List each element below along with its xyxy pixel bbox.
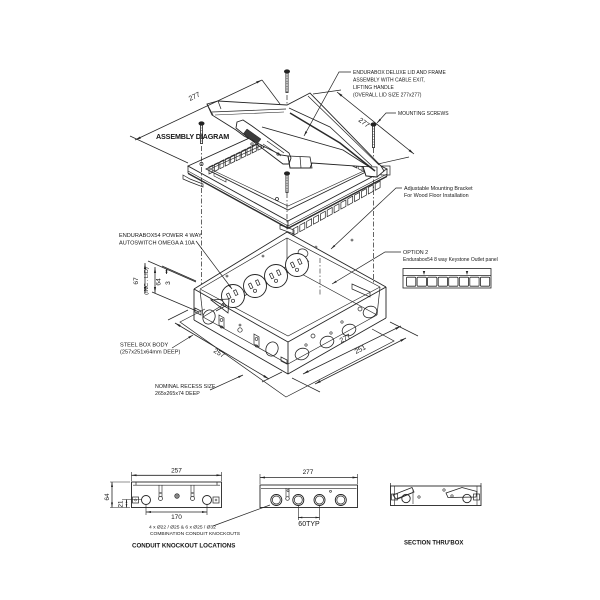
svg-text:277: 277 xyxy=(303,469,314,476)
svg-text:4 x Ø22 / Ø25 & 6 x Ø25 / Ø32: 4 x Ø22 / Ø25 & 6 x Ø25 / Ø32 xyxy=(149,525,216,531)
svg-text:For Wood Floor Installation: For Wood Floor Installation xyxy=(404,193,469,199)
svg-text:257: 257 xyxy=(171,468,182,475)
svg-text:NOMINAL RECESS SIZE: NOMINAL RECESS SIZE xyxy=(155,384,216,390)
svg-text:60TYP: 60TYP xyxy=(298,521,320,528)
svg-text:COMBINATION CONDUIT KNOCKOUTS: COMBINATION CONDUIT KNOCKOUTS xyxy=(150,531,241,537)
svg-text:(INC . LID): (INC . LID) xyxy=(144,267,150,295)
svg-text:(257x251x64mm DEEP): (257x251x64mm DEEP) xyxy=(120,350,180,356)
svg-text:21: 21 xyxy=(118,500,125,507)
svg-text:3: 3 xyxy=(165,281,172,285)
svg-text:OPTION 2: OPTION 2 xyxy=(403,250,428,256)
svg-text:MOUNTING SCREWS: MOUNTING SCREWS xyxy=(398,111,449,117)
svg-text:ASSEMBLY WITH CABLE EXIT,: ASSEMBLY WITH CABLE EXIT, xyxy=(353,78,425,84)
svg-text:ENDURABOX DELUXE LID AND FRAME: ENDURABOX DELUXE LID AND FRAME xyxy=(353,70,446,76)
svg-text:AUTOSWITCH OMEGA A 10A: AUTOSWITCH OMEGA A 10A xyxy=(119,241,195,247)
svg-text:Adjustable Mounting Bracket: Adjustable Mounting Bracket xyxy=(404,186,473,192)
svg-text:67: 67 xyxy=(133,277,140,285)
svg-text:ENDURABOX54 POWER 4 WAY: ENDURABOX54 POWER 4 WAY xyxy=(119,233,202,239)
svg-text:Endurabox54 8 way Keystone Out: Endurabox54 8 way Keystone Outlet panel xyxy=(403,257,498,263)
svg-text:LIFTING HANDLE: LIFTING HANDLE xyxy=(353,85,395,91)
svg-text:64: 64 xyxy=(156,278,163,286)
svg-text:STEEL BOX BODY: STEEL BOX BODY xyxy=(120,343,169,349)
svg-text:170: 170 xyxy=(171,514,182,521)
svg-text:(OVERALL LID SIZE 277x277): (OVERALL LID SIZE 277x277) xyxy=(353,93,422,99)
svg-text:265x265x74 DEEP: 265x265x74 DEEP xyxy=(155,391,200,397)
svg-text:ASSEMBLY DIAGRAM: ASSEMBLY DIAGRAM xyxy=(156,132,229,141)
svg-text:64: 64 xyxy=(104,493,111,501)
svg-text:CONDUIT KNOCKOUT LOCATIONS: CONDUIT KNOCKOUT LOCATIONS xyxy=(132,543,235,550)
svg-text:SECTION THRU'BOX: SECTION THRU'BOX xyxy=(404,541,463,547)
